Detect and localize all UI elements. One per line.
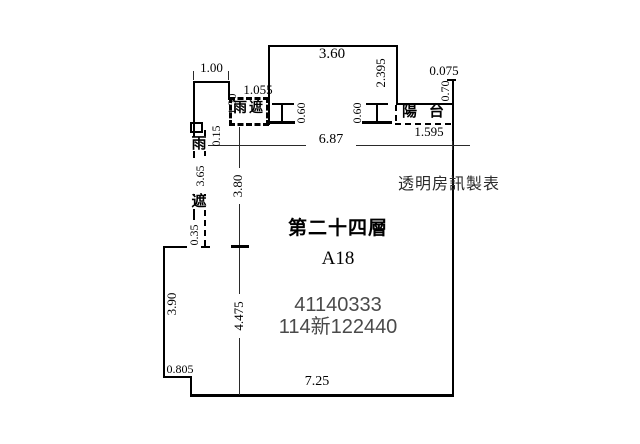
window-symbol-right-mid — [376, 103, 378, 124]
dim-top-box-height: 2.395 — [374, 50, 388, 96]
dim-right-top-height: 0.70 — [438, 79, 452, 103]
dim-window-right: 0.60 — [350, 100, 364, 126]
dim-small-offset: 0.15 — [209, 121, 223, 151]
dim-canopy-strip-height: 3.65 — [193, 158, 207, 194]
canopy-char-bottom: 遮 — [190, 195, 208, 209]
dim-bottom-width: 7.25 — [288, 375, 346, 389]
watermark: 透明房訊製表 — [398, 178, 512, 192]
dim-window-left: 0.60 — [294, 100, 308, 126]
wall-notch — [190, 122, 203, 133]
dim-lower-interior-height: 4.475 — [232, 294, 246, 338]
wall-top-left-box-top — [193, 81, 230, 83]
registration-number: 41140333 — [282, 298, 394, 312]
floor-plan: 1.00 1.055 3.60 0.075 1.595 6.87 0.805 7… — [0, 0, 640, 444]
dimension-tick-middle — [231, 245, 249, 248]
wall-top-box-right — [396, 45, 398, 105]
wall-bottom-step-horizontal — [163, 376, 192, 378]
dim-left-wall-height: 3.90 — [165, 286, 179, 322]
unit-id: A18 — [284, 252, 392, 266]
case-number: 114新122440 — [266, 320, 410, 334]
dimension-tick-right — [452, 141, 453, 150]
wall-bottom-step-vertical — [190, 377, 192, 396]
canopy-char-top: 雨 — [190, 137, 208, 151]
dim-top-box-width: 3.60 — [300, 47, 364, 61]
wall-right — [452, 80, 454, 396]
balcony-label: 陽台 — [401, 105, 457, 119]
window-symbol-left-mid — [281, 103, 283, 124]
dim-right-step: 0.075 — [426, 64, 462, 78]
dim-balcony-width: 1.595 — [407, 125, 451, 139]
dim-canopy-width: 1.055 — [236, 83, 280, 97]
window-symbol-left-top — [272, 103, 294, 105]
floor-name: 第二十四層 — [284, 222, 392, 236]
balcony-dashed-left — [395, 105, 397, 124]
wall-bottom — [190, 394, 454, 397]
dim-interior-width: 6.87 — [306, 133, 356, 147]
dim-top-left-width: 1.00 — [193, 61, 230, 75]
dim-canopy-strip-width: 0.35 — [187, 220, 201, 250]
dim-bottom-step-width: 0.805 — [164, 362, 196, 376]
dim-upper-interior-height: 3.80 — [231, 168, 245, 204]
canopy-box-label: 雨遮 — [230, 102, 268, 116]
